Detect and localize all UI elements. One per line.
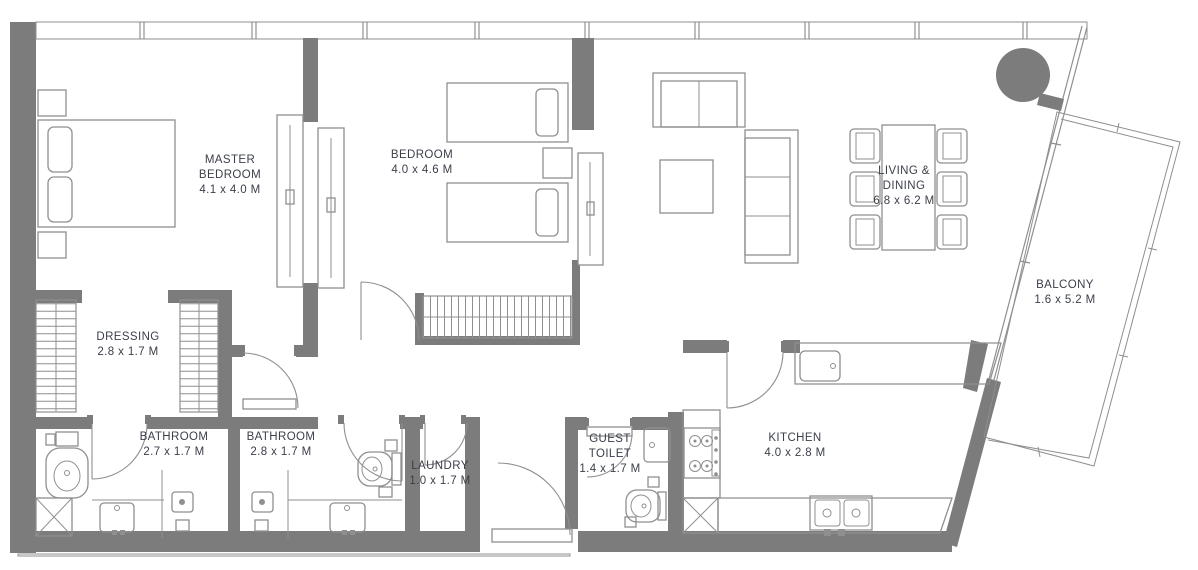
dining-chair (850, 215, 880, 249)
kitchen-sink (810, 496, 872, 536)
dining-chair (937, 215, 967, 249)
stove (684, 428, 720, 478)
dining-chair (850, 129, 880, 163)
interior-walls (36, 38, 800, 538)
floor-plan: MASTER BEDROOM 4.1 x 4.0 M BEDROOM 4.0 x… (0, 0, 1198, 570)
guest-toilet-door (587, 427, 632, 477)
sliding-wardrobes (277, 115, 344, 288)
pillow (536, 89, 558, 136)
dining-chair (937, 172, 967, 206)
bathroom-2-fixtures (252, 440, 402, 538)
cistern (56, 432, 78, 446)
twin-bed (447, 183, 568, 242)
sink (330, 503, 365, 532)
shower-mixer (255, 520, 268, 531)
floor-plan-canvas (0, 0, 1198, 570)
balcony-structure (963, 48, 1180, 466)
sink (100, 503, 134, 532)
shaft (36, 498, 72, 536)
nightstand (38, 232, 66, 258)
twin-bed (447, 83, 568, 142)
pillow (536, 189, 558, 236)
outer-walls (10, 22, 1087, 556)
sofa-two-seat (653, 73, 745, 127)
double-bed (38, 120, 175, 227)
dining-table (882, 125, 935, 250)
sofa-three-seat (745, 130, 798, 263)
nightstand (38, 90, 66, 116)
counter-bottom (718, 498, 952, 533)
master-bedroom-door (243, 353, 298, 409)
dining-chair (937, 129, 967, 163)
bathroom-1-door (92, 424, 147, 479)
laundry-door (425, 423, 467, 465)
window-mullions (140, 22, 1027, 39)
bedroom-wardrobe (423, 296, 572, 338)
living-room-furniture (653, 73, 967, 263)
pillow (48, 177, 72, 222)
shaft (683, 498, 718, 533)
shower-mixer (176, 520, 189, 531)
bedroom-door (361, 282, 419, 340)
structural-column (996, 48, 1050, 102)
coffee-table (660, 160, 713, 213)
counter-left (683, 410, 720, 498)
pillow (48, 127, 72, 172)
dining-chair (850, 172, 880, 206)
entrance-door (480, 463, 578, 553)
bathroom-1-fixtures (36, 432, 193, 538)
nightstand (543, 148, 572, 178)
kitchen-door (727, 352, 783, 408)
guest-toilet-fixtures (625, 428, 670, 527)
basin (800, 351, 840, 381)
master-bedroom-furniture (38, 90, 175, 258)
dining-set (850, 125, 967, 250)
sink (644, 428, 670, 462)
dressing-wardrobes (36, 300, 218, 412)
